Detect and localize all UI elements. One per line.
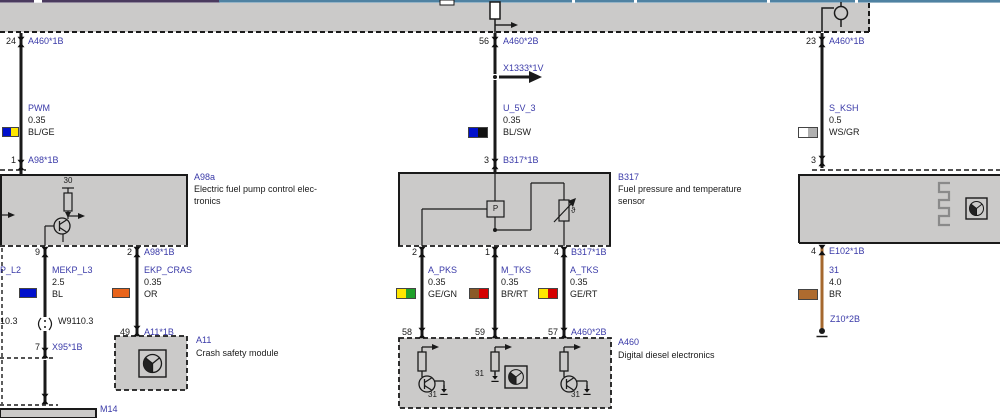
module-id-a11: A11	[196, 335, 211, 345]
fuse-icon	[490, 2, 518, 33]
ground-icon	[440, 385, 447, 394]
heater-coil-icon	[939, 183, 950, 225]
bus-line-purple	[0, 0, 220, 3]
thermistor-icon	[559, 200, 569, 221]
ground-icon	[583, 385, 590, 394]
pin-number: 58	[396, 327, 412, 337]
connector-label: A460*1B	[829, 36, 865, 46]
signal-name: A_TKS	[570, 265, 599, 275]
signal-name: EKP_CRAS	[144, 265, 192, 275]
module-box-a11	[115, 336, 187, 390]
pin-number: 9	[24, 247, 40, 257]
pin-number: 49	[114, 327, 130, 337]
wire-gauge: 0.35	[144, 277, 162, 287]
module-id-a460: A460	[618, 337, 639, 347]
wire-color-swatch	[469, 288, 489, 299]
wire-gauge: 0.35	[503, 115, 521, 125]
fan-module-frame	[966, 198, 987, 219]
signal-name: M_TKS	[501, 265, 531, 275]
wire-color-code: GE/GN	[428, 289, 457, 299]
connector-stub	[440, 0, 454, 5]
connector-label: X95*1B	[52, 342, 83, 352]
theta-label: ϑ	[571, 206, 575, 215]
connector-label: B317*1B	[503, 155, 539, 165]
pin-number: 59	[469, 327, 485, 337]
wiring-diagram: 24 A460*1B 56 A460*2B 23 A460*1B X1333*1…	[0, 0, 1000, 418]
connector-label: Z10*2B	[830, 314, 860, 324]
wire-color-swatch	[19, 288, 37, 298]
ground-31-label: 31	[428, 390, 437, 399]
module-desc: sensor	[618, 196, 645, 206]
a460-internal-circuit	[418, 344, 587, 389]
pin-number: 4	[543, 247, 559, 257]
pin-number: 1	[0, 155, 16, 165]
transistor-icon	[54, 218, 70, 234]
wire-color-code: BL/GE	[28, 127, 55, 137]
wire-color-code: BR	[829, 289, 842, 299]
pin-number: 1	[474, 247, 490, 257]
ground-icon	[491, 372, 498, 381]
wire-color-code: BR/RT	[501, 289, 528, 299]
a98a-internal-circuit	[1, 188, 85, 246]
splice-label: X1333*1V	[503, 63, 544, 73]
wire-color-swatch	[112, 288, 130, 298]
control-unit-icon	[509, 370, 524, 385]
wire-color-swatch	[798, 127, 818, 138]
module-box-m14	[0, 409, 96, 418]
module-box-b317	[398, 172, 611, 246]
wire-color-code: BL	[52, 289, 63, 299]
cutoff-splice-fragment: 10.3	[0, 316, 18, 326]
connector-label: B317*1B	[571, 247, 607, 257]
signal-name: PWM	[28, 103, 50, 113]
wire-color-swatch	[798, 289, 818, 300]
module-desc: Crash safety module	[196, 348, 279, 358]
module-id-m14: M14	[100, 404, 118, 414]
wire-color-swatch	[468, 127, 488, 138]
connector-label: E102*1B	[829, 246, 865, 256]
pin-number: 2	[401, 247, 417, 257]
signal-name: U_5V_3	[503, 103, 536, 113]
module-desc: Digital diesel electronics	[618, 350, 715, 360]
terminal-dot	[819, 328, 825, 334]
module-id-a98a: A98a	[194, 172, 215, 182]
wire-gauge: 4.0	[829, 277, 842, 287]
bus-line-blue	[219, 0, 1000, 3]
cutoff-signal-fragment: P_L2	[0, 265, 21, 275]
module-desc: Fuel pressure and temperature	[618, 184, 742, 194]
wire-gauge: 0.35	[570, 277, 588, 287]
wire-gauge: 2.5	[52, 277, 65, 287]
terminal-30-label: 30	[60, 176, 76, 185]
pump-icon	[822, 2, 848, 32]
pin-number: 57	[540, 327, 558, 337]
splice-w9110	[39, 318, 52, 330]
wire-gauge: 0.5	[829, 115, 842, 125]
pin-number: 3	[796, 155, 816, 165]
signal-name: A_PKS	[428, 265, 457, 275]
wire-color-code: WS/GR	[829, 127, 860, 137]
wire-color-code: OR	[144, 289, 158, 299]
module-box-heater	[799, 175, 1000, 243]
module-desc: Electric fuel pump control elec-	[194, 184, 317, 194]
wire-color-swatch	[396, 288, 416, 299]
splice-label: W9110.3	[58, 316, 93, 326]
pin-number: 24	[0, 36, 16, 46]
wire-ground-brown	[817, 246, 828, 337]
wire-color-swatch	[538, 288, 558, 299]
connector-label: A98*1B	[144, 247, 175, 257]
module-box-a98a	[0, 174, 188, 246]
signal-name: MEKP_L3	[52, 265, 93, 275]
connector-label: A460*2B	[503, 36, 539, 46]
pin-number: 23	[796, 36, 816, 46]
top-power-band	[0, 0, 1000, 32]
wire-gauge: 0.35	[501, 277, 519, 287]
fan-icon	[969, 201, 983, 215]
wire-gauge: 0.35	[428, 277, 446, 287]
connector-label: A98*1B	[28, 155, 59, 165]
pin-number: 7	[24, 342, 40, 352]
module-id-b317: B317	[618, 172, 639, 182]
wire-color-code: GE/RT	[570, 289, 597, 299]
wire-color-code: BL/SW	[503, 127, 531, 137]
pin-number: 56	[469, 36, 489, 46]
control-unit-icon	[144, 355, 162, 373]
connector-label: A460*2B	[571, 327, 607, 337]
signal-name: 31	[829, 265, 839, 275]
ground-31-label: 31	[571, 390, 580, 399]
pin-number: 3	[469, 155, 489, 165]
module-desc: tronics	[194, 196, 221, 206]
ground-31-label: 31	[475, 369, 484, 378]
pressure-sensor-label: P	[487, 204, 504, 213]
wire-color-swatch	[2, 127, 19, 137]
connector-label: A11*1B	[144, 327, 174, 337]
pin-number: 2	[116, 247, 132, 257]
signal-name: S_KSH	[829, 103, 859, 113]
pin-number: 4	[800, 246, 816, 256]
connector-label: A460*1B	[28, 36, 64, 46]
wire-gauge: 0.35	[28, 115, 46, 125]
